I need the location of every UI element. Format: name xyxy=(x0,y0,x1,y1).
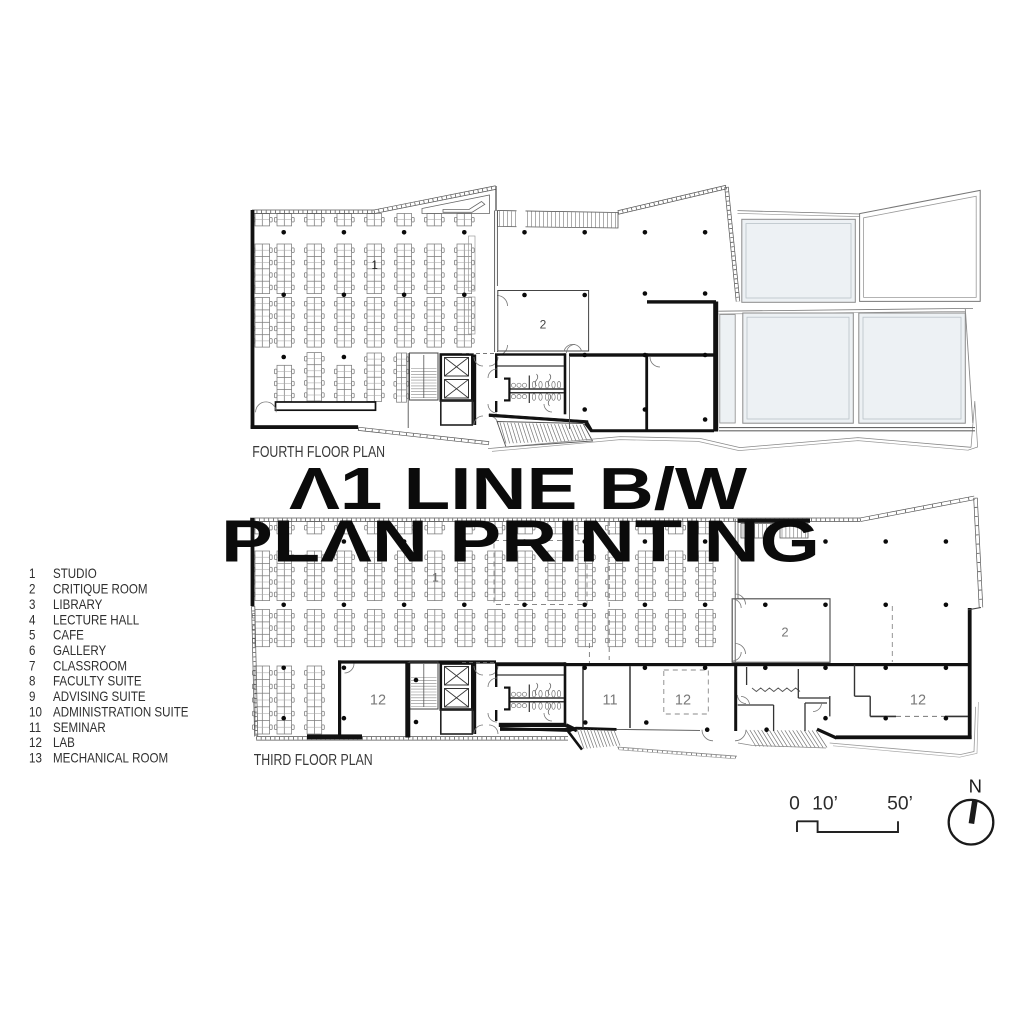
svg-text:LECTURE HALL: LECTURE HALL xyxy=(53,613,139,628)
svg-text:50’: 50’ xyxy=(887,794,913,815)
svg-text:2: 2 xyxy=(540,318,547,332)
svg-text:13: 13 xyxy=(29,751,42,766)
svg-text:ADMINISTRATION SUITE: ADMINISTRATION SUITE xyxy=(53,705,189,720)
svg-text:10: 10 xyxy=(29,705,42,720)
svg-text:PLΛN PRINTING: PLΛN PRINTING xyxy=(221,508,820,575)
svg-text:CLASSROOM: CLASSROOM xyxy=(53,659,127,674)
svg-text:8: 8 xyxy=(29,674,35,689)
svg-text:3: 3 xyxy=(29,597,35,612)
svg-text:2: 2 xyxy=(781,625,788,640)
svg-text:SEMINAR: SEMINAR xyxy=(53,720,106,735)
svg-text:LIBRARY: LIBRARY xyxy=(53,597,103,612)
svg-text:11: 11 xyxy=(29,720,41,735)
svg-text:1: 1 xyxy=(371,260,377,272)
svg-text:10’: 10’ xyxy=(812,794,838,815)
svg-text:FACULTY SUITE: FACULTY SUITE xyxy=(53,674,142,689)
svg-text:N: N xyxy=(969,775,982,796)
svg-text:LAB: LAB xyxy=(53,735,75,750)
svg-text:12: 12 xyxy=(910,693,926,709)
svg-text:THIRD FLOOR PLAN: THIRD FLOOR PLAN xyxy=(254,752,373,769)
svg-text:12: 12 xyxy=(675,693,691,709)
svg-text:6: 6 xyxy=(29,643,35,658)
svg-text:7: 7 xyxy=(29,659,35,674)
svg-text:2: 2 xyxy=(29,582,35,597)
svg-text:9: 9 xyxy=(29,689,35,704)
svg-text:1: 1 xyxy=(29,566,35,581)
svg-text:GALLERY: GALLERY xyxy=(53,643,107,658)
svg-text:12: 12 xyxy=(370,693,386,709)
svg-text:CAFE: CAFE xyxy=(53,628,84,643)
svg-text:11: 11 xyxy=(602,693,617,709)
svg-text:ADVISING SUITE: ADVISING SUITE xyxy=(53,689,146,704)
svg-text:CRITIQUE ROOM: CRITIQUE ROOM xyxy=(53,582,148,597)
svg-text:4: 4 xyxy=(29,613,35,628)
svg-text:MECHANICAL ROOM: MECHANICAL ROOM xyxy=(53,751,168,766)
svg-text:12: 12 xyxy=(29,735,42,750)
svg-text:0: 0 xyxy=(789,794,800,815)
svg-text:5: 5 xyxy=(29,628,35,643)
svg-text:STUDIO: STUDIO xyxy=(53,566,97,581)
